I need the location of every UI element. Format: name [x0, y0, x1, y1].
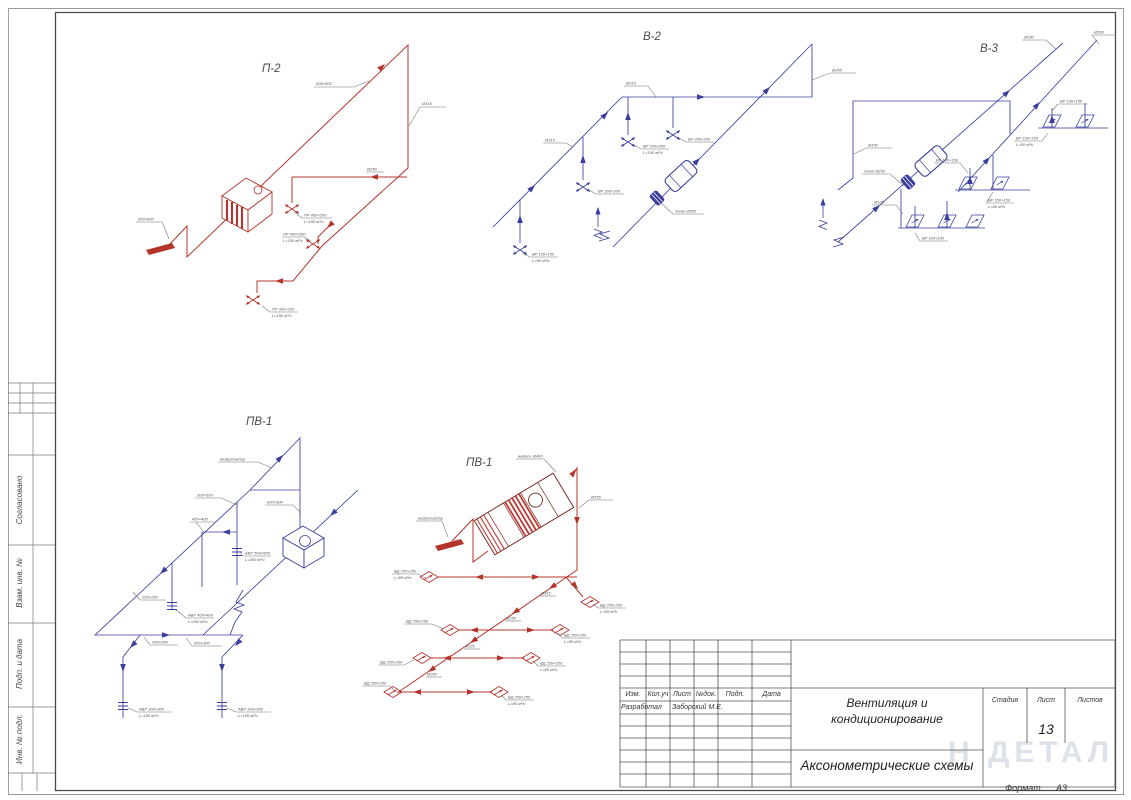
svg-text:L=250 м³/ч: L=250 м³/ч: [188, 619, 208, 624]
svg-text:L=100 м³/ч: L=100 м³/ч: [643, 150, 663, 155]
strip-label-inv-podl: Инв. № подл.: [16, 707, 24, 771]
svg-text:500×300: 500×300: [194, 641, 210, 646]
rev-header-podp: Подп.: [718, 691, 752, 698]
svg-text:Ø250: Ø250: [505, 616, 517, 621]
svg-text:L=85 м³/ч: L=85 м³/ч: [394, 575, 411, 580]
svg-text:L=150 м³/ч: L=150 м³/ч: [139, 713, 159, 718]
drawing-sheet: Н ДЕТАЛ П-2: [0, 0, 1131, 800]
diagram-pv1r: ПВ-1: [362, 454, 626, 707]
svg-text:ВД 250×250: ВД 250×250: [564, 633, 587, 638]
svg-text:Ø355: Ø355: [831, 68, 843, 73]
svg-text:ВР 150×150: ВР 150×150: [532, 252, 555, 257]
outer-border: [9, 9, 1124, 795]
diagram-p2-title: П-2: [262, 63, 281, 75]
rev-header-izm: Изм.: [620, 691, 646, 698]
v3-grilles: [906, 115, 1094, 227]
diagram-pv1r-title: ПВ-1: [466, 457, 492, 469]
stage-label: Стадия: [983, 697, 1027, 704]
pv1-ducts: [95, 438, 358, 718]
svg-text:ВД 250×250: ВД 250×250: [600, 603, 623, 608]
svg-text:L=150 м³/ч: L=150 м³/ч: [304, 219, 324, 224]
pv1r-ahu: [474, 473, 573, 555]
svg-text:АВР 400×400: АВР 400×400: [187, 613, 214, 618]
svg-text:L=85 м³/ч: L=85 м³/ч: [564, 639, 581, 644]
p2-ahu: [222, 178, 272, 232]
sheet-number: 13: [1027, 722, 1065, 736]
format-value: А3: [1056, 784, 1067, 793]
svg-text:Ø200: Ø200: [1093, 30, 1105, 35]
svg-text:Ø250: Ø250: [1023, 35, 1035, 40]
svg-text:Ø225: Ø225: [464, 644, 476, 649]
diagram-pv1: ПВ-1: [95, 416, 358, 718]
svg-text:ПР 300×150: ПР 300×150: [272, 307, 295, 312]
p2-leaders: 600×600 Ø315 ПР 400×200 L=150 м³/ч ПР 40…: [136, 81, 446, 318]
svg-text:ВД 250×250: ВД 250×250: [508, 695, 531, 700]
svg-text:ВД 250×250: ВД 250×250: [540, 661, 563, 666]
svg-text:ВД 250×250: ВД 250×250: [364, 681, 387, 686]
diagram-v3-title: В-3: [980, 43, 999, 55]
svg-text:ПР 400×200: ПР 400×200: [283, 232, 306, 237]
strip-label-vzam-inv: Взам. инв. №: [16, 553, 24, 613]
diagram-v2-title: В-2: [643, 31, 662, 43]
svg-text:ВР 200×200: ВР 200×200: [688, 137, 711, 142]
svg-text:L=50 м³/ч: L=50 м³/ч: [532, 258, 549, 263]
svg-text:воздухозабор: воздухозабор: [220, 457, 246, 462]
doc-title-line1: Вентиляция и: [791, 697, 983, 709]
strip-label-podp-data: Подп. и дата: [16, 631, 24, 697]
rev-header-list: Лист: [670, 691, 694, 698]
developer-label: Разработал: [621, 704, 662, 711]
pv1-ahu: [283, 526, 324, 568]
diagram-p2: П-2: [136, 45, 446, 318]
svg-text:L=85 м³/ч: L=85 м³/ч: [508, 701, 525, 706]
svg-text:Ø315: Ø315: [540, 591, 552, 596]
svg-text:L=150 м³/ч: L=150 м³/ч: [238, 713, 258, 718]
pv1-leaders: воздухозабор 600×600 500×500 400×400 АВР…: [128, 457, 301, 719]
svg-text:воздухозабор: воздухозабор: [418, 516, 444, 521]
doc-subtitle: Аксонометрические схемы: [791, 759, 983, 773]
svg-text:АВР 300×300: АВР 300×300: [237, 707, 264, 712]
drawing-canvas: П-2: [0, 0, 1131, 800]
svg-text:L=50 м³/ч: L=50 м³/ч: [1016, 142, 1033, 147]
svg-text:АВР 500×500: АВР 500×500: [244, 551, 271, 556]
svg-text:ПР 400×200: ПР 400×200: [304, 213, 327, 218]
strip-label-soglasovano: Согласовано: [16, 466, 24, 534]
p2-fan-circle-icon: [254, 186, 262, 194]
svg-text:ВР 150×150: ВР 150×150: [1016, 136, 1039, 141]
svg-text:Ø355: Ø355: [590, 495, 602, 500]
svg-text:АВР 300×300: АВР 300×300: [138, 707, 165, 712]
svg-text:Ø200: Ø200: [426, 672, 438, 677]
format-label: Формат: [1005, 784, 1041, 793]
rev-header-ndok: №док.: [694, 691, 718, 698]
pv1-fan-circle-icon: [300, 536, 311, 547]
pv1r-leaders: выброс Ø400 Ø355 воздухозабор Ø315 Ø250 …: [362, 454, 626, 707]
svg-text:400×400: 400×400: [192, 517, 208, 522]
svg-text:L=150 м³/ч: L=150 м³/ч: [283, 238, 303, 243]
v3-flow-arrows: [872, 88, 1055, 220]
svg-text:ВР 100×100: ВР 100×100: [922, 236, 945, 241]
svg-text:ВД 250×250: ВД 250×250: [380, 660, 403, 665]
svg-text:Ø160: Ø160: [867, 143, 879, 148]
v3-leaders: Ø250 Ø200 Зонт Ø250 Ø160 ВР 150×150 ВР 1…: [854, 30, 1116, 242]
svg-text:500×500: 500×500: [197, 493, 213, 498]
main-frame: [56, 13, 1116, 791]
v3-riser-arrow-icon: [819, 198, 827, 230]
diagram-v3: В-3: [819, 30, 1116, 248]
sheets-label: Листов: [1065, 697, 1115, 704]
svg-text:600×600: 600×600: [267, 500, 283, 505]
developer-name: Заборский М.Е.: [672, 704, 723, 711]
svg-text:L=50 м³/ч: L=50 м³/ч: [988, 204, 1005, 209]
p2-intake-icon: [146, 243, 175, 255]
diagram-v2: В-2: [493, 31, 856, 263]
svg-text:ВР 150×150: ВР 150×150: [1060, 99, 1083, 104]
svg-text:ВР 200×200: ВР 200×200: [598, 189, 621, 194]
svg-text:Ø315: Ø315: [625, 81, 637, 86]
svg-text:L=85 м³/ч: L=85 м³/ч: [600, 609, 617, 614]
svg-text:L=150 м³/ч: L=150 м³/ч: [272, 313, 292, 318]
diagram-pv1-title: ПВ-1: [246, 416, 272, 428]
svg-text:L=85 м³/ч: L=85 м³/ч: [540, 667, 557, 672]
doc-title-line2: кондиционирование: [791, 713, 983, 725]
svg-text:Ø315: Ø315: [544, 138, 556, 143]
svg-text:Ø125: Ø125: [873, 200, 885, 205]
p2-flow-arrows: [275, 62, 387, 284]
svg-text:ВР 200×200: ВР 200×200: [643, 144, 666, 149]
svg-text:Зонт Ø250: Зонт Ø250: [864, 169, 886, 174]
svg-text:ВР 150×150: ВР 150×150: [988, 198, 1011, 203]
rev-header-koluch: Кол.уч: [646, 691, 670, 698]
svg-text:L=400 м³/ч: L=400 м³/ч: [245, 557, 265, 562]
svg-text:выброс Ø400: выброс Ø400: [518, 454, 543, 459]
v2-coupling-icon: [649, 190, 664, 206]
svg-text:Зонт Ø355: Зонт Ø355: [675, 209, 697, 214]
svg-text:600×600: 600×600: [316, 81, 332, 86]
svg-text:Ø250: Ø250: [366, 167, 378, 172]
pv1-grilles: [118, 549, 242, 710]
svg-text:300×300: 300×300: [152, 640, 168, 645]
svg-text:600×600: 600×600: [138, 217, 154, 222]
pv1r-intake-icon: [435, 539, 464, 551]
v2-fan-icon: [664, 159, 699, 193]
svg-text:ВД 250×250: ВД 250×250: [406, 619, 429, 624]
sheet-label: Лист: [1027, 697, 1065, 704]
svg-text:250×250: 250×250: [141, 595, 158, 600]
v3-coupling-icon: [900, 174, 915, 190]
svg-text:ВД 250×250: ВД 250×250: [394, 569, 417, 574]
svg-text:ВР 150×150: ВР 150×150: [936, 158, 959, 163]
rev-header-data: Дата: [752, 691, 791, 698]
svg-text:Ø315: Ø315: [421, 101, 433, 106]
